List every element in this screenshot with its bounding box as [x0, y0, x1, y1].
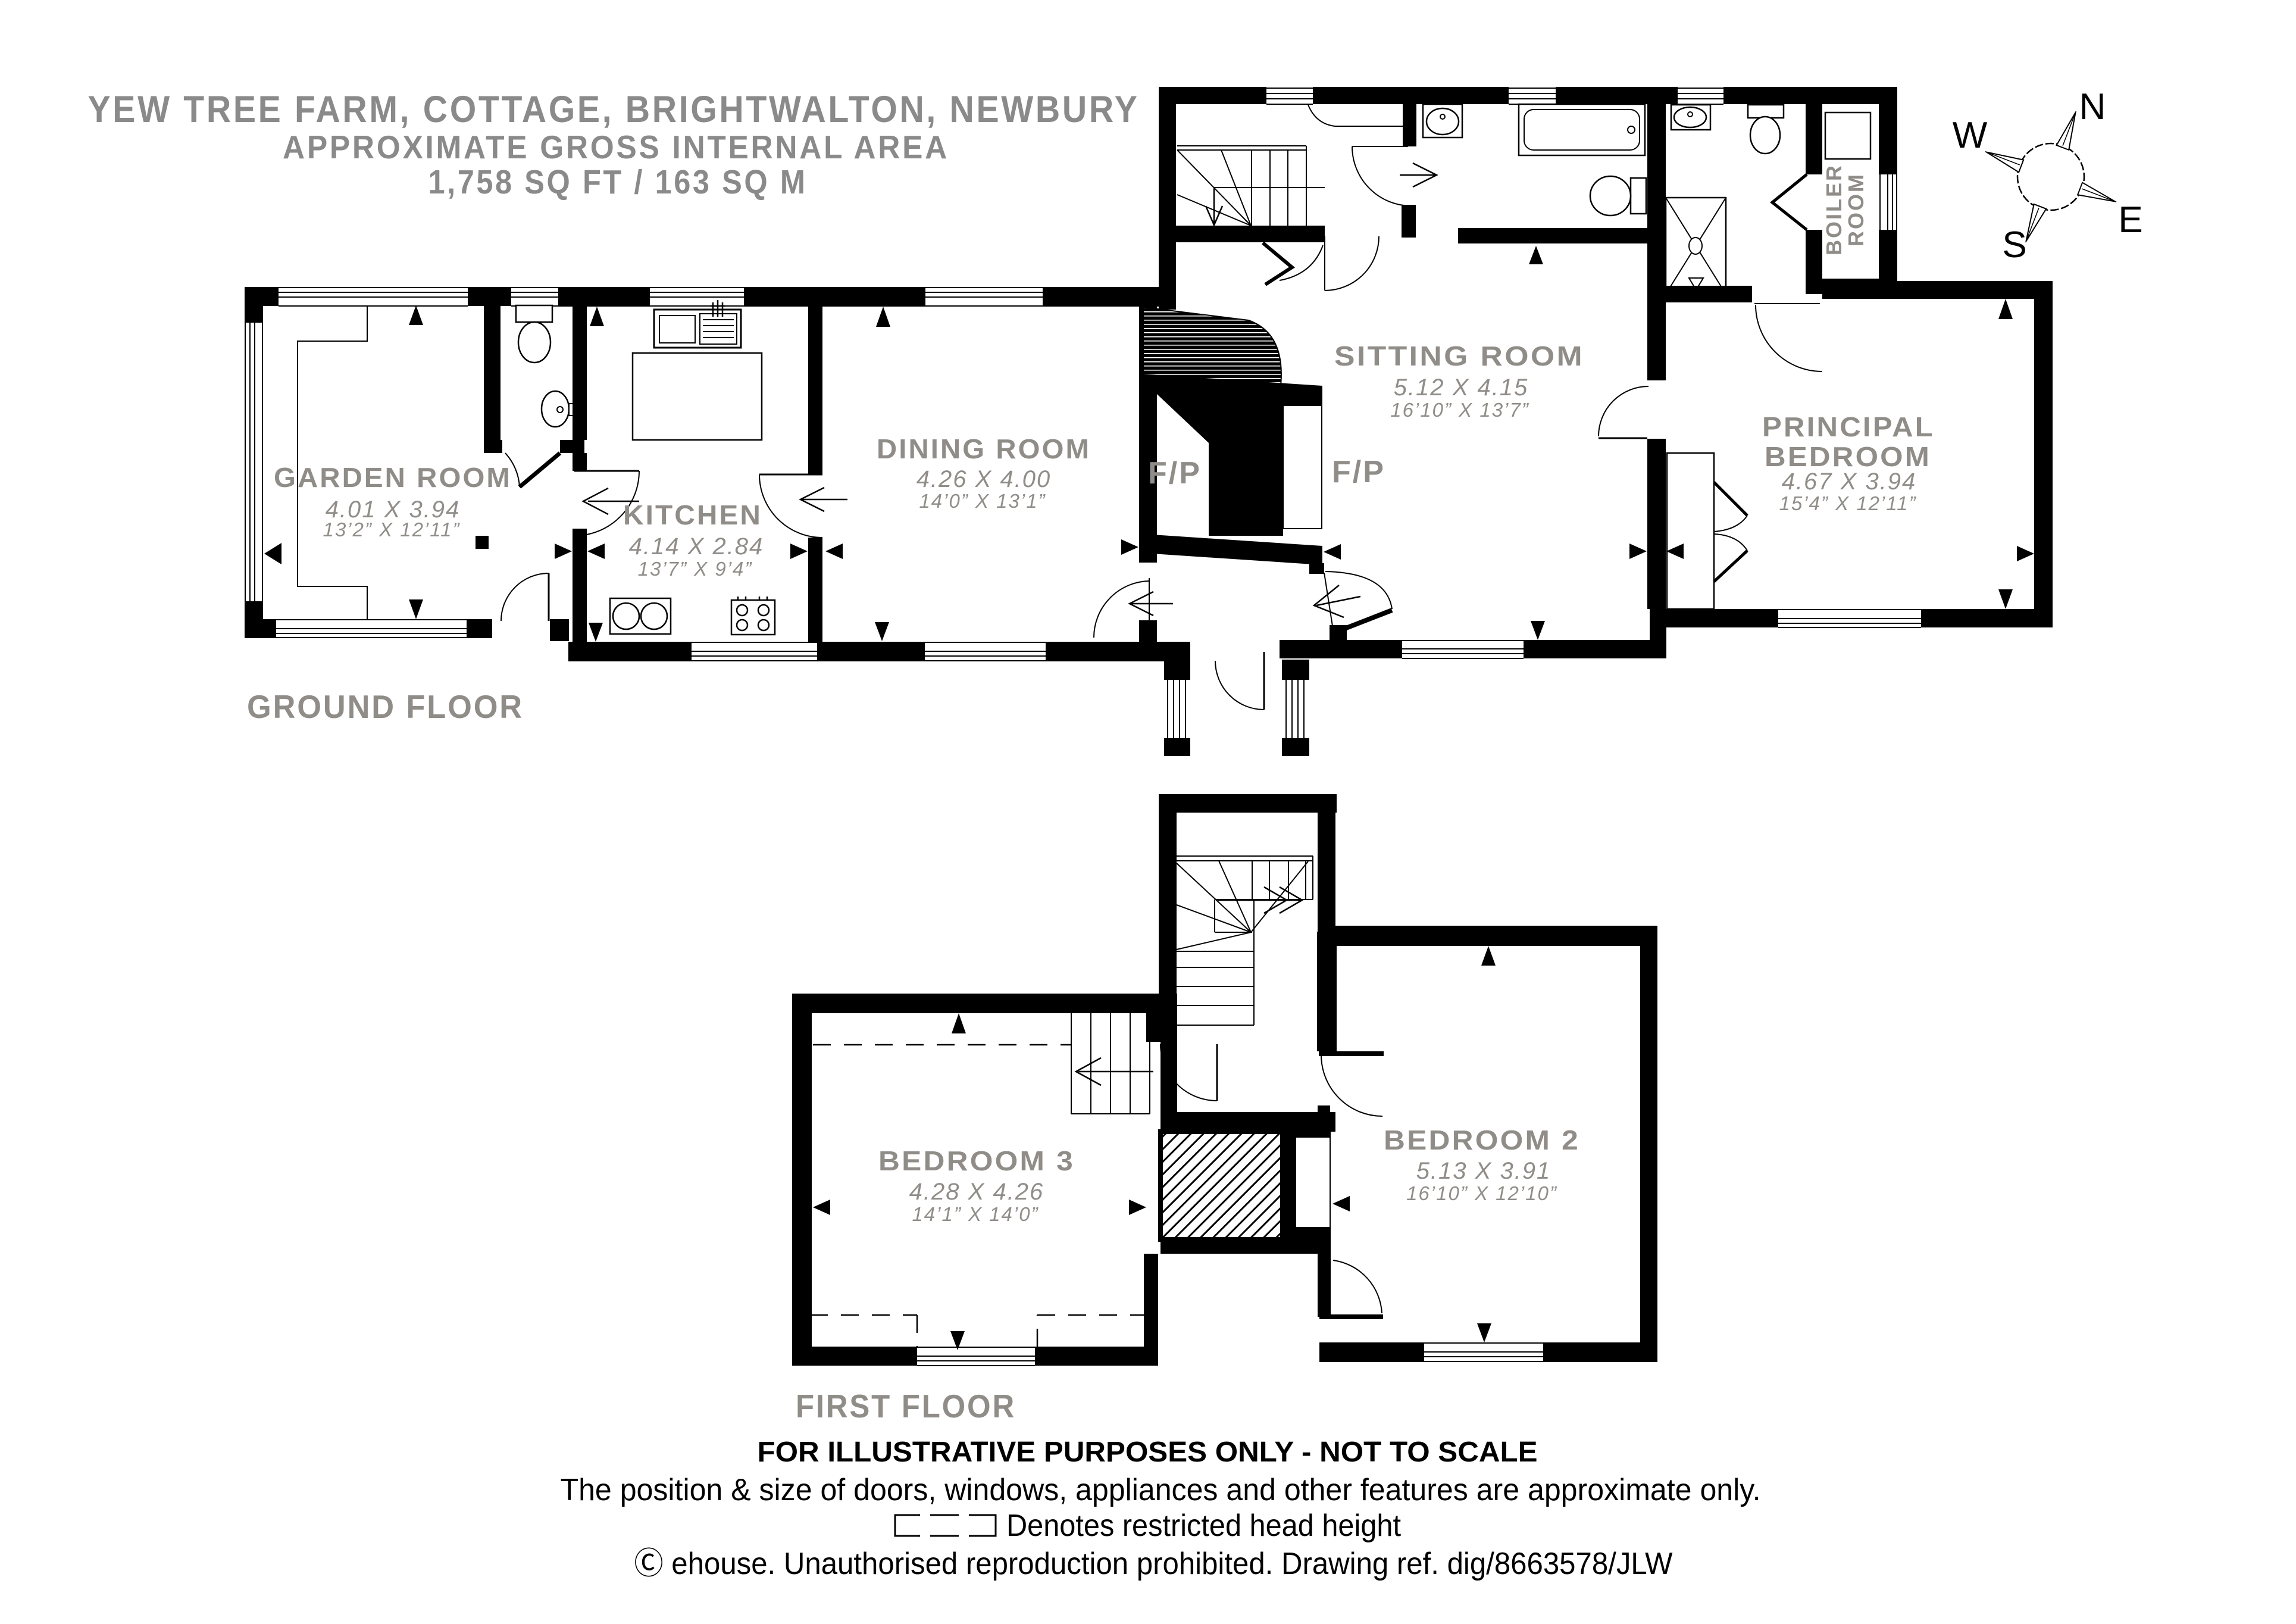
svg-text:FIRST FLOOR: FIRST FLOOR: [796, 1388, 1016, 1425]
svg-text:E: E: [2118, 199, 2142, 241]
svg-text:FOR ILLUSTRATIVE PURPOSES ONLY: FOR ILLUSTRATIVE PURPOSES ONLY - NOT TO …: [758, 1436, 1538, 1468]
svg-text:GROUND FLOOR: GROUND FLOOR: [247, 688, 524, 725]
svg-text:5.13 X 3.91: 5.13 X 3.91: [1416, 1158, 1551, 1184]
svg-text:The position & size of doors,: The position & size of doors, windows, a…: [561, 1473, 1761, 1507]
svg-text:GARDEN ROOM: GARDEN ROOM: [274, 462, 512, 493]
svg-text:14’0” X 13’1”: 14’0” X 13’1”: [919, 490, 1046, 512]
svg-text:4.26 X 4.00: 4.26 X 4.00: [916, 466, 1052, 492]
svg-text:BEDROOM 2: BEDROOM 2: [1384, 1125, 1580, 1155]
svg-text:4.28 X 4.26: 4.28 X 4.26: [909, 1179, 1044, 1205]
svg-text:F/P: F/P: [1332, 455, 1385, 489]
svg-text:5.12 X 4.15: 5.12 X 4.15: [1394, 374, 1529, 401]
svg-text:F/P: F/P: [1148, 456, 1202, 491]
svg-text:13’2” X 12’11”: 13’2” X 12’11”: [323, 519, 460, 541]
svg-text:Denotes restricted head height: Denotes restricted head height: [1006, 1509, 1402, 1543]
svg-text:16’10” X 12’10”: 16’10” X 12’10”: [1406, 1182, 1557, 1204]
svg-text:BEDROOM: BEDROOM: [1765, 441, 1931, 472]
svg-text:W: W: [1953, 115, 1988, 156]
svg-text:BOILER: BOILER: [1822, 164, 1846, 255]
svg-text:S: S: [2002, 224, 2026, 266]
svg-text:YEW TREE FARM, COTTAGE, BRIGHT: YEW TREE FARM, COTTAGE, BRIGHTWALTON, NE…: [88, 89, 1140, 130]
svg-text:Ⓒ ehouse. Unauthorised reprodu: Ⓒ ehouse. Unauthorised reproduction proh…: [634, 1547, 1673, 1581]
svg-text:PRINCIPAL: PRINCIPAL: [1762, 411, 1935, 442]
svg-text:SITTING ROOM: SITTING ROOM: [1334, 341, 1584, 371]
svg-text:DINING ROOM: DINING ROOM: [877, 433, 1091, 464]
svg-text:15’4” X 12’11”: 15’4” X 12’11”: [1779, 492, 1916, 514]
svg-text:1,758 SQ FT / 163 SQ M: 1,758 SQ FT / 163 SQ M: [428, 163, 808, 201]
svg-text:16’10” X 13’7”: 16’10” X 13’7”: [1390, 399, 1529, 421]
svg-text:4.14 X 2.84: 4.14 X 2.84: [629, 533, 764, 560]
svg-text:BEDROOM 3: BEDROOM 3: [878, 1145, 1075, 1176]
svg-text:ROOM: ROOM: [1844, 173, 1868, 246]
svg-text:N: N: [2079, 86, 2106, 127]
svg-text:4.67 X 3.94: 4.67 X 3.94: [1782, 469, 1917, 495]
svg-text:KITCHEN: KITCHEN: [623, 499, 762, 530]
svg-text:14’1” X 14’0”: 14’1” X 14’0”: [912, 1203, 1038, 1225]
svg-text:13’7” X 9’4”: 13’7” X 9’4”: [638, 558, 753, 580]
svg-text:APPROXIMATE GROSS INTERNAL ARE: APPROXIMATE GROSS INTERNAL AREA: [283, 129, 949, 165]
